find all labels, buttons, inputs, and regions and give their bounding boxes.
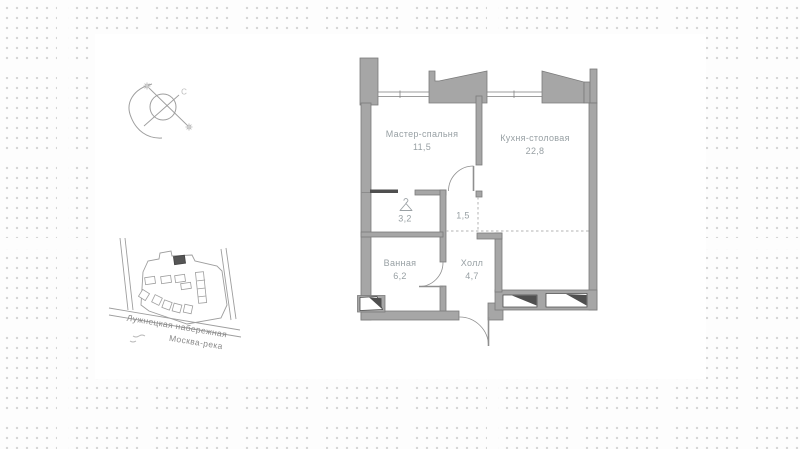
wall-left [361,103,371,320]
road-edge-left [120,238,133,310]
room-label-bathroom: Ванная 6,2 [384,257,417,283]
room-label-corridor: 1,5 [456,210,469,223]
door-swing-bedroom [449,166,474,191]
wall-wardrobe-right [440,190,446,262]
wall-right [589,103,597,310]
compass-arc [129,84,162,138]
window-bedroom [378,92,429,97]
room-area: 4,7 [461,270,483,283]
room-area: 11,5 [386,141,459,154]
room-area: 6,2 [384,270,417,283]
room-area: 22,8 [500,145,570,158]
window-kitchen [487,92,542,97]
wall-bedroom-kitchen [476,96,482,165]
room-name: Холл [461,257,483,270]
room-label-wardrobe: 3,2 [398,213,411,226]
room-area: 3,2 [398,213,411,226]
wall-tab-top-right [590,69,597,103]
wall-bathroom-top [361,232,443,237]
room-name: Кухня-столовая [500,132,570,145]
door-swing-bathroom [419,263,443,287]
wall-pilaster-top-left [360,58,378,105]
compass-north-label: С [181,88,187,97]
room-name: Мастер-спальня [386,128,459,141]
compass-circle [150,94,176,120]
hanger-icon [400,199,412,211]
building-footprints [138,272,206,314]
room-area: 1,5 [456,210,469,223]
wall-hall-right [495,233,502,292]
room-label-kitchen-dining: Кухня-столовая 22,8 [500,132,570,158]
water-waves [130,335,145,342]
door-swing-entrance [460,317,489,346]
wall-fin-top-2 [542,71,584,103]
page-background: С Мастер-спальня 11,5 Кухня-столовая 22,… [0,0,800,449]
floor-plan [358,58,598,346]
road-edge-right [221,248,236,320]
highlighted-building [173,255,185,264]
sliding-door-panel [370,190,398,194]
room-label-master-bedroom: Мастер-спальня 11,5 [386,128,459,154]
room-name: Ванная [384,257,417,270]
room-label-hall: Холл 4,7 [461,257,483,283]
